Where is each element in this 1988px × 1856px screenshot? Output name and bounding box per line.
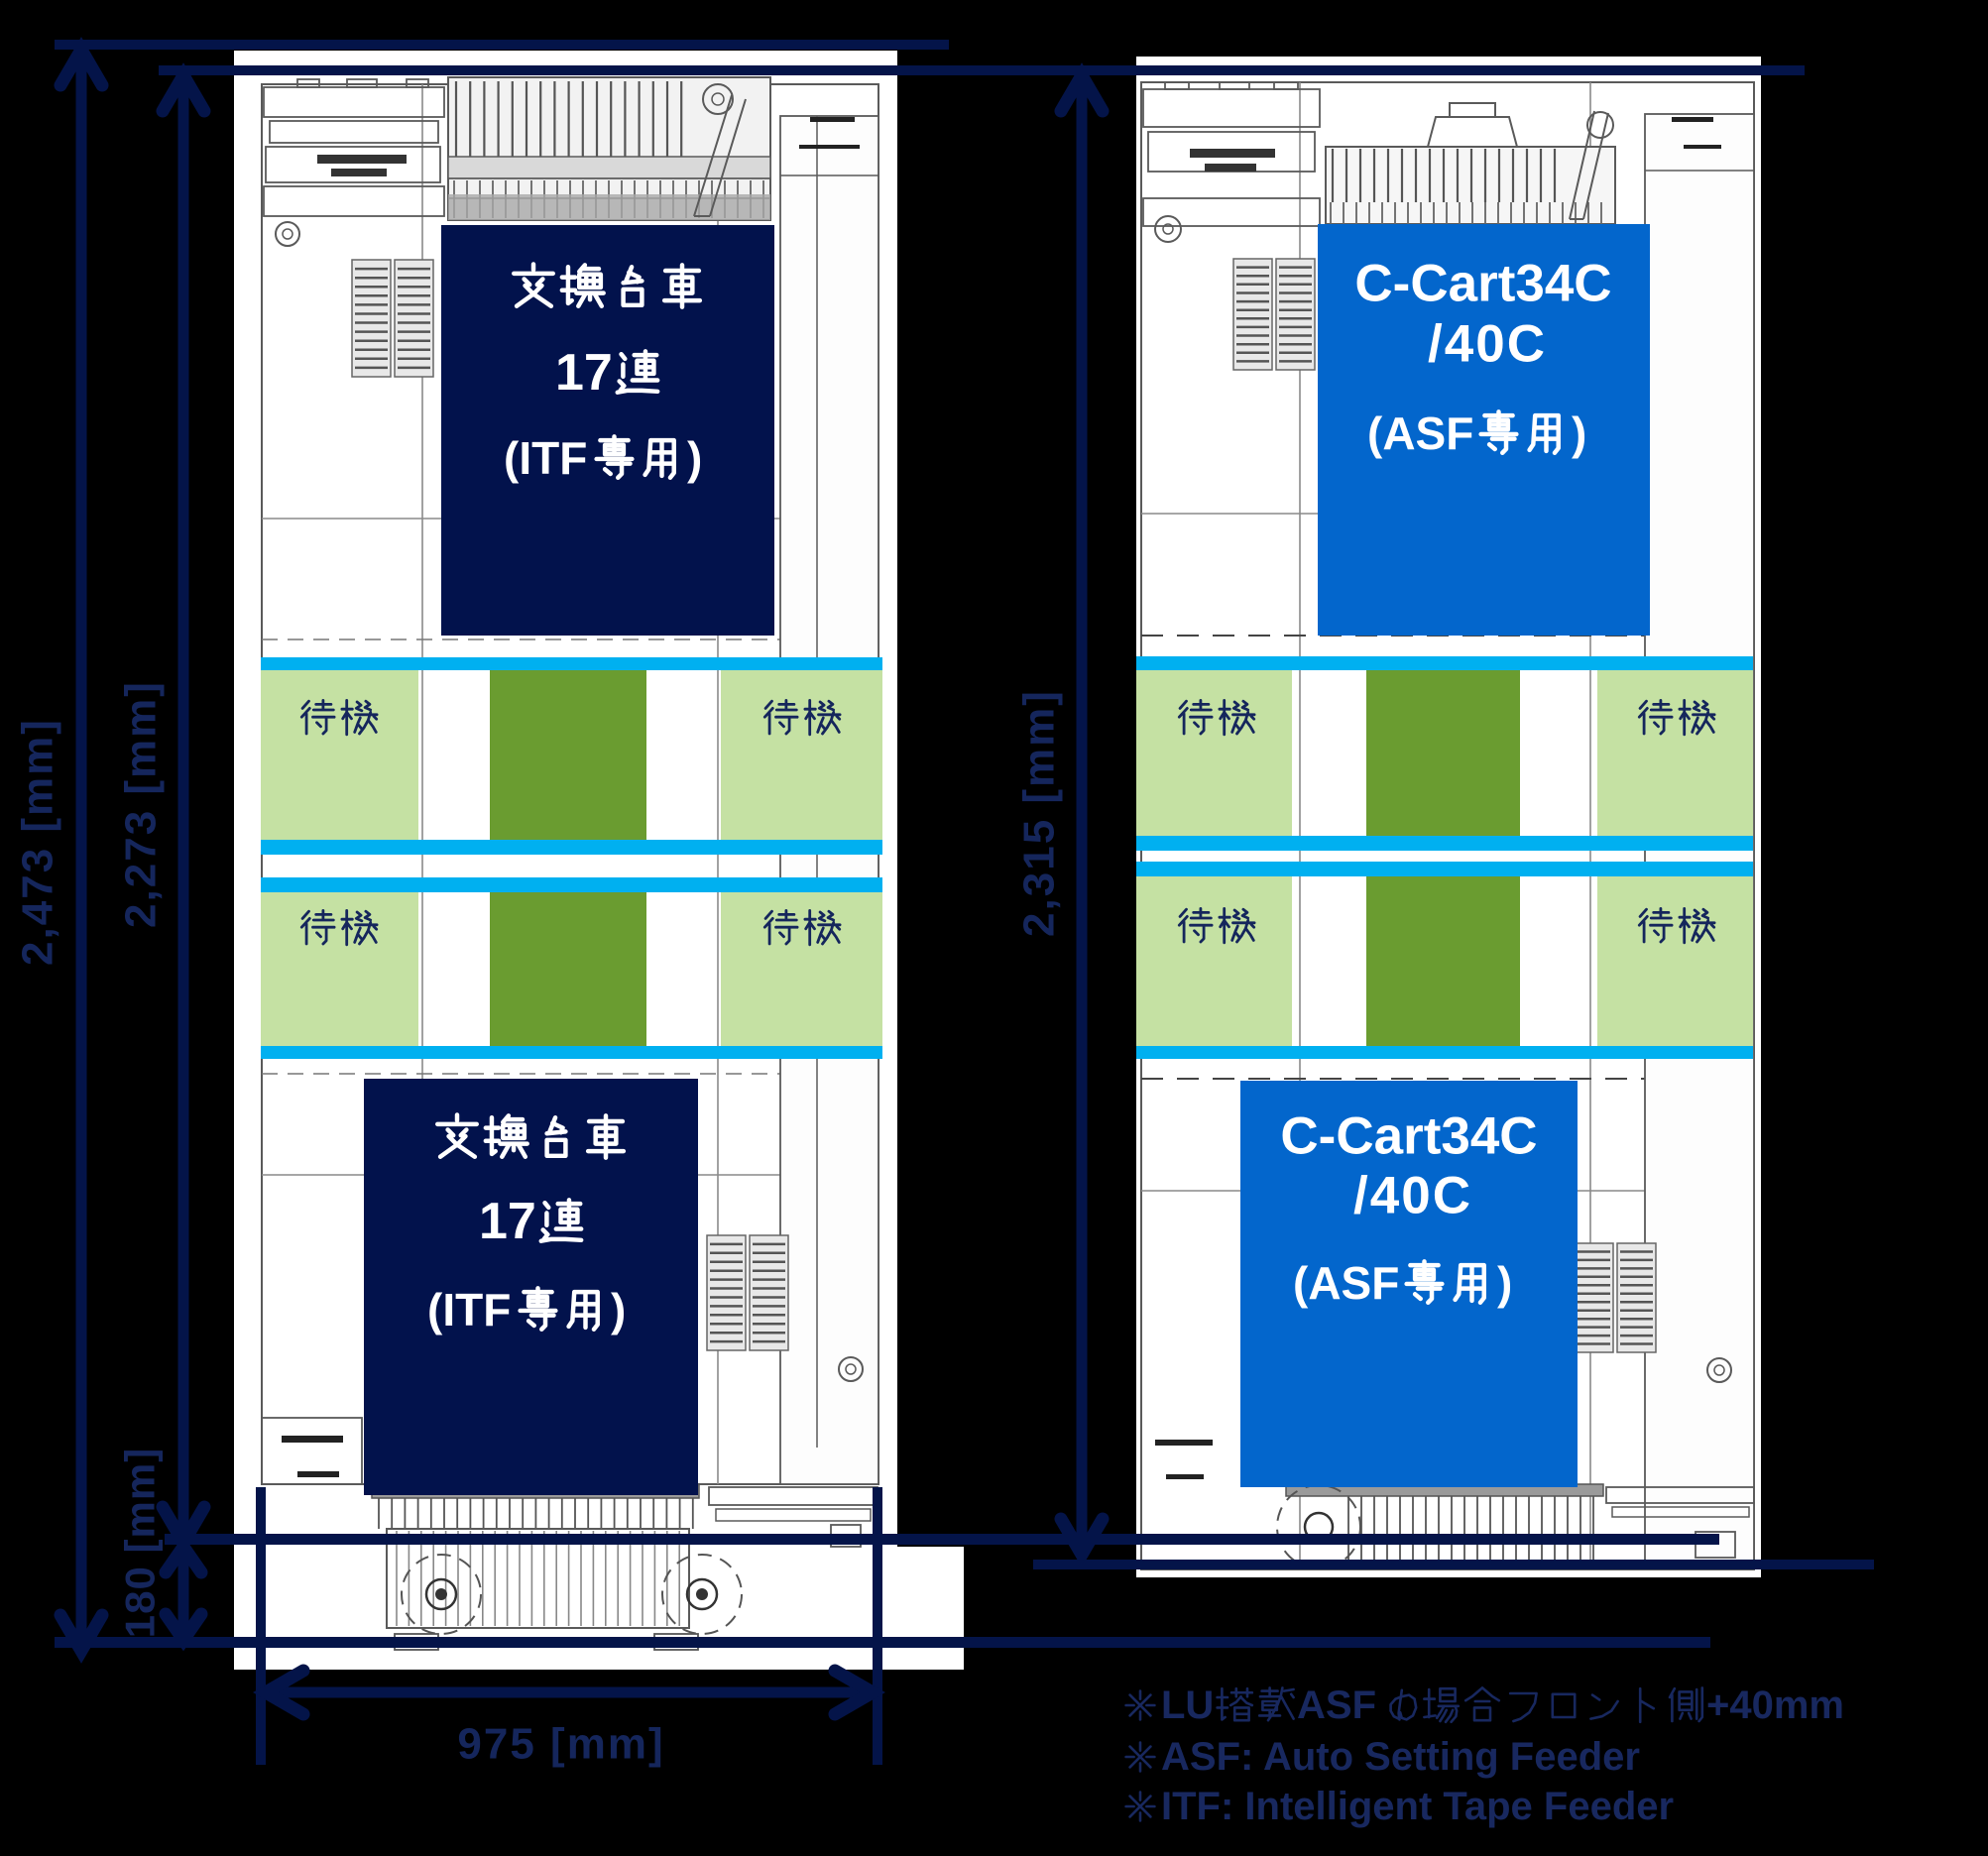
svg-text:LU: LU [1161, 1683, 1214, 1727]
svg-text:2,473 [mm]: 2,473 [mm] [14, 718, 62, 966]
svg-text:975 [mm]: 975 [mm] [457, 1720, 664, 1769]
svg-text:/40C: /40C [1428, 315, 1547, 374]
svg-text:(ITF: (ITF [427, 1284, 511, 1335]
svg-text:180 [mm]: 180 [mm] [117, 1448, 164, 1638]
svg-text:): ) [1497, 1257, 1512, 1309]
svg-text:C-Cart34C: C-Cart34C [1354, 255, 1611, 313]
svg-text:17: 17 [479, 1193, 536, 1250]
svg-text:2,273 [mm]: 2,273 [mm] [117, 680, 166, 928]
svg-text:17: 17 [555, 344, 613, 402]
svg-text:): ) [687, 432, 702, 484]
svg-text:(ITF: (ITF [504, 432, 587, 484]
svg-text:ITF: Intelligent Tape Feeder: ITF: Intelligent Tape Feeder [1161, 1785, 1674, 1828]
svg-text:2,315 [mm]: 2,315 [mm] [1015, 689, 1064, 937]
svg-text:(ASF: (ASF [1293, 1257, 1399, 1309]
svg-text:(ASF: (ASF [1367, 407, 1473, 459]
svg-text:+40mm: +40mm [1706, 1683, 1844, 1727]
svg-text:/40C: /40C [1353, 1167, 1472, 1225]
svg-text:): ) [1572, 407, 1586, 459]
svg-text:ASF: Auto Setting Feeder: ASF: Auto Setting Feeder [1161, 1735, 1640, 1779]
svg-text:C-Cart34C: C-Cart34C [1280, 1107, 1537, 1166]
svg-text:): ) [611, 1284, 626, 1335]
svg-text:ASF: ASF [1297, 1683, 1376, 1727]
